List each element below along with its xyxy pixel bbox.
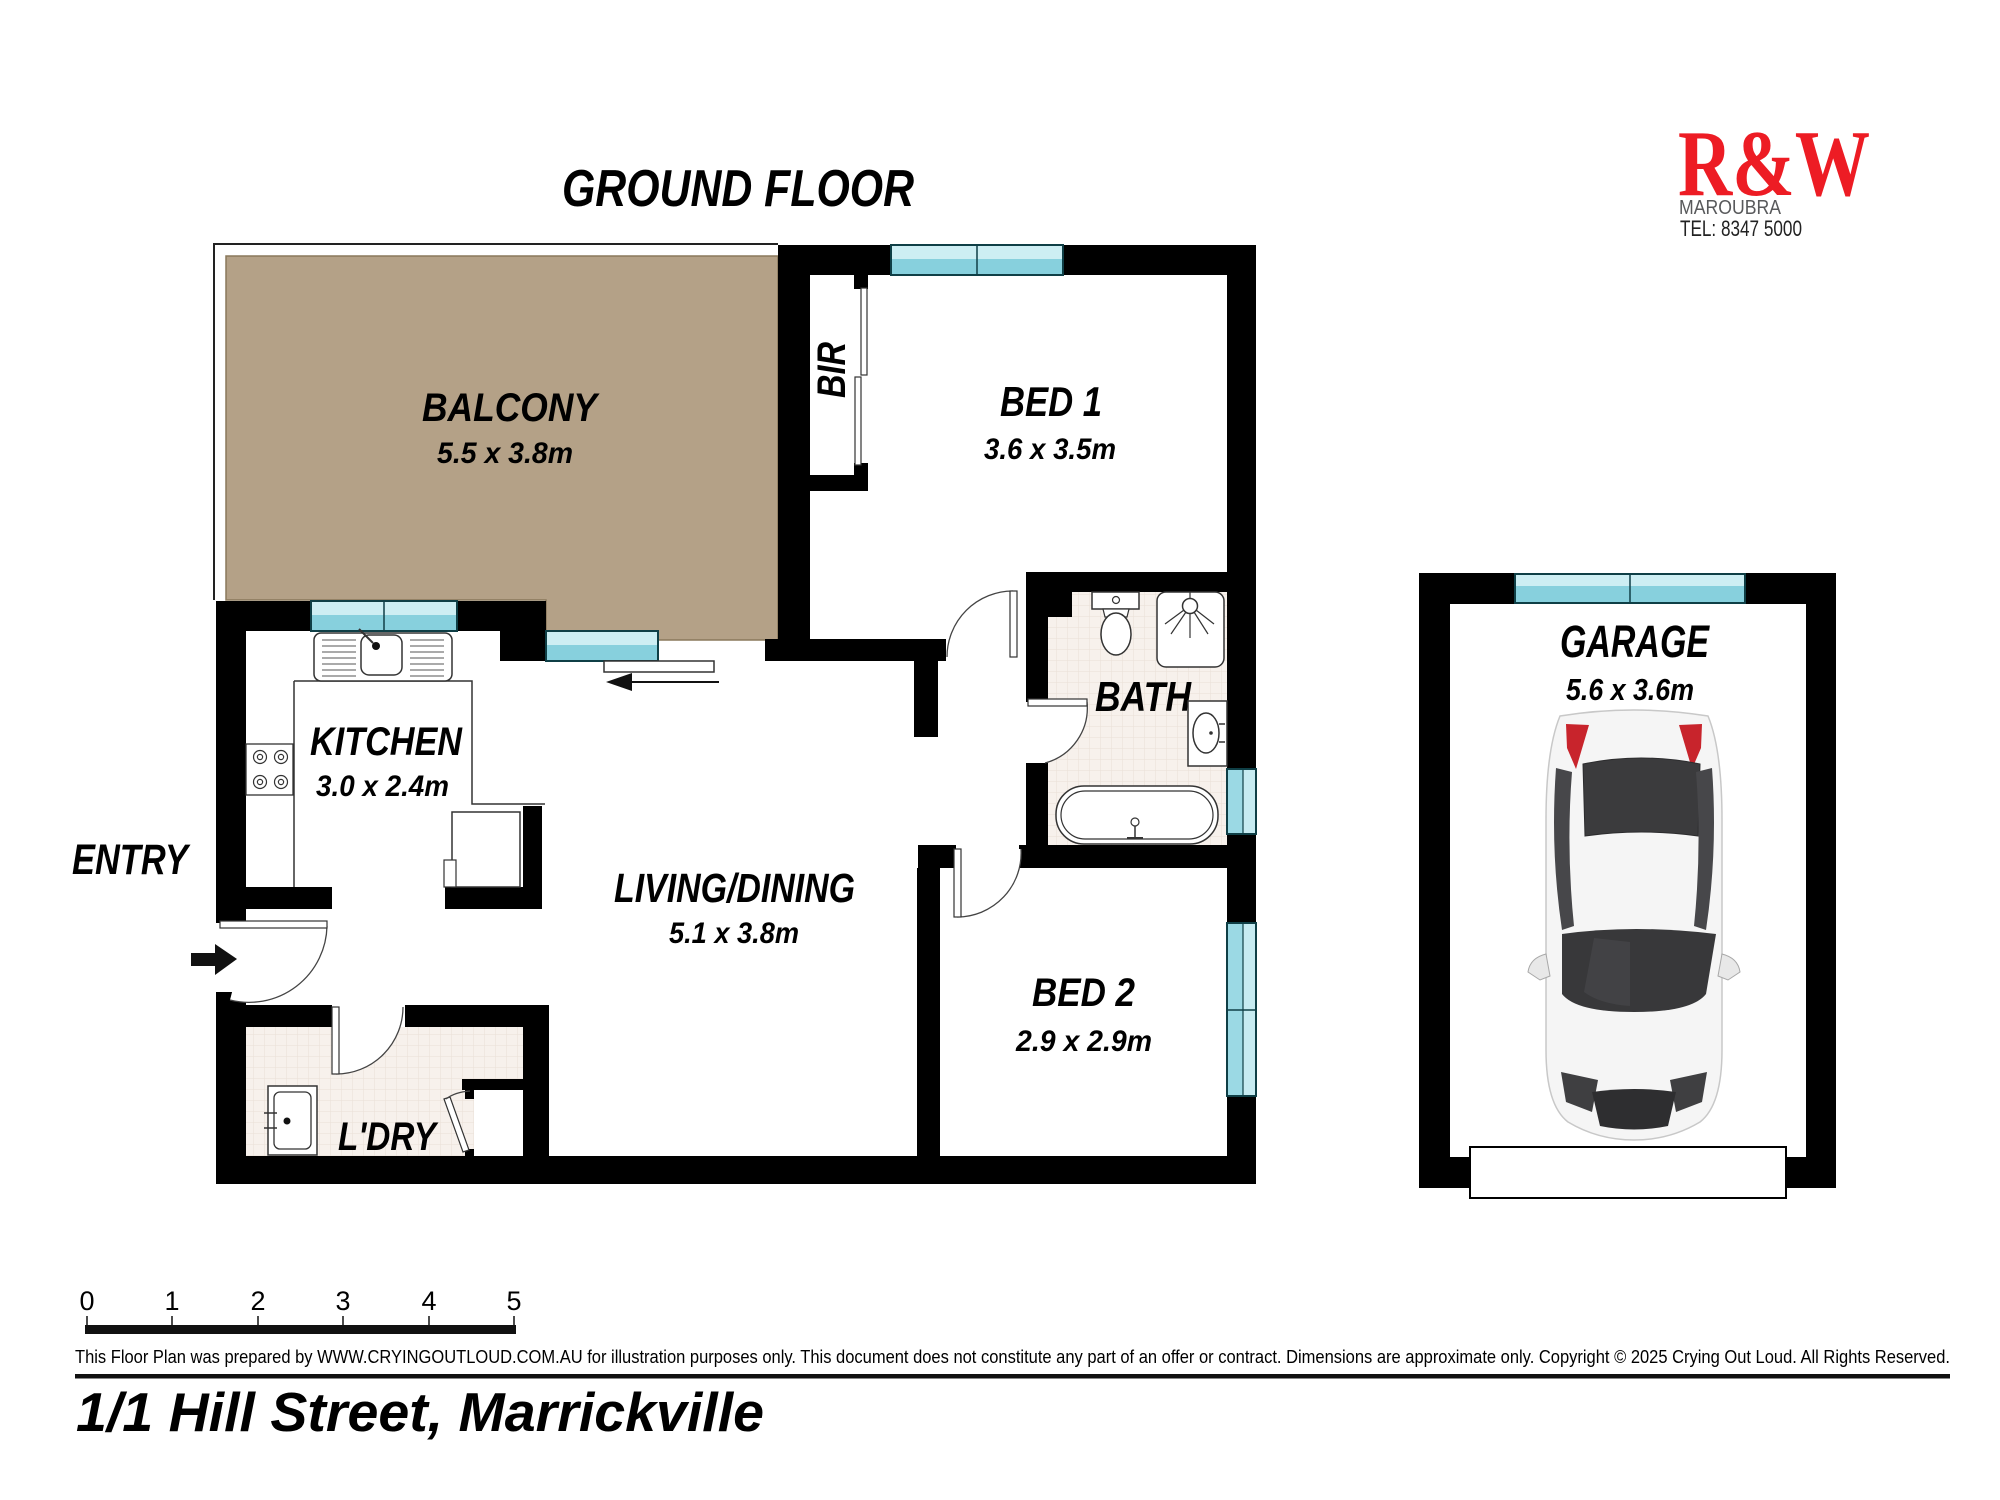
svg-text:TEL: 8347 5000: TEL: 8347 5000 — [1680, 216, 1802, 241]
svg-text:5.6 x 3.6m: 5.6 x 3.6m — [1566, 672, 1694, 707]
svg-text:BATH: BATH — [1095, 673, 1192, 720]
svg-text:BIR: BIR — [810, 342, 854, 398]
svg-text:This Floor Plan was prepared b: This Floor Plan was prepared by WWW.CRYI… — [75, 1346, 1950, 1367]
svg-text:1: 1 — [164, 1286, 179, 1316]
svg-text:KITCHEN: KITCHEN — [310, 720, 463, 764]
svg-text:2: 2 — [250, 1286, 265, 1316]
svg-text:2.9 x 2.9m: 2.9 x 2.9m — [1015, 1025, 1152, 1058]
svg-text:BALCONY: BALCONY — [422, 386, 600, 430]
svg-text:3: 3 — [335, 1286, 350, 1316]
svg-text:GARAGE: GARAGE — [1560, 616, 1710, 667]
svg-text:LIVING/DINING: LIVING/DINING — [614, 865, 855, 911]
svg-text:0: 0 — [79, 1286, 94, 1316]
svg-text:5.1 x 3.8m: 5.1 x 3.8m — [669, 917, 799, 950]
svg-text:1/1 Hill Street, Marrickville: 1/1 Hill Street, Marrickville — [76, 1381, 764, 1443]
svg-text:4: 4 — [421, 1286, 436, 1316]
svg-text:BED 2: BED 2 — [1032, 971, 1135, 1015]
svg-text:GROUND FLOOR: GROUND FLOOR — [562, 160, 914, 218]
svg-text:ENTRY: ENTRY — [72, 836, 191, 884]
svg-text:5.5 x 3.8m: 5.5 x 3.8m — [437, 437, 573, 470]
svg-text:5: 5 — [506, 1286, 521, 1316]
svg-text:BED 1: BED 1 — [1000, 378, 1102, 425]
svg-text:3.6 x 3.5m: 3.6 x 3.5m — [984, 433, 1116, 466]
svg-text:L'DRY: L'DRY — [338, 1115, 439, 1159]
svg-text:3.0 x 2.4m: 3.0 x 2.4m — [316, 770, 449, 803]
